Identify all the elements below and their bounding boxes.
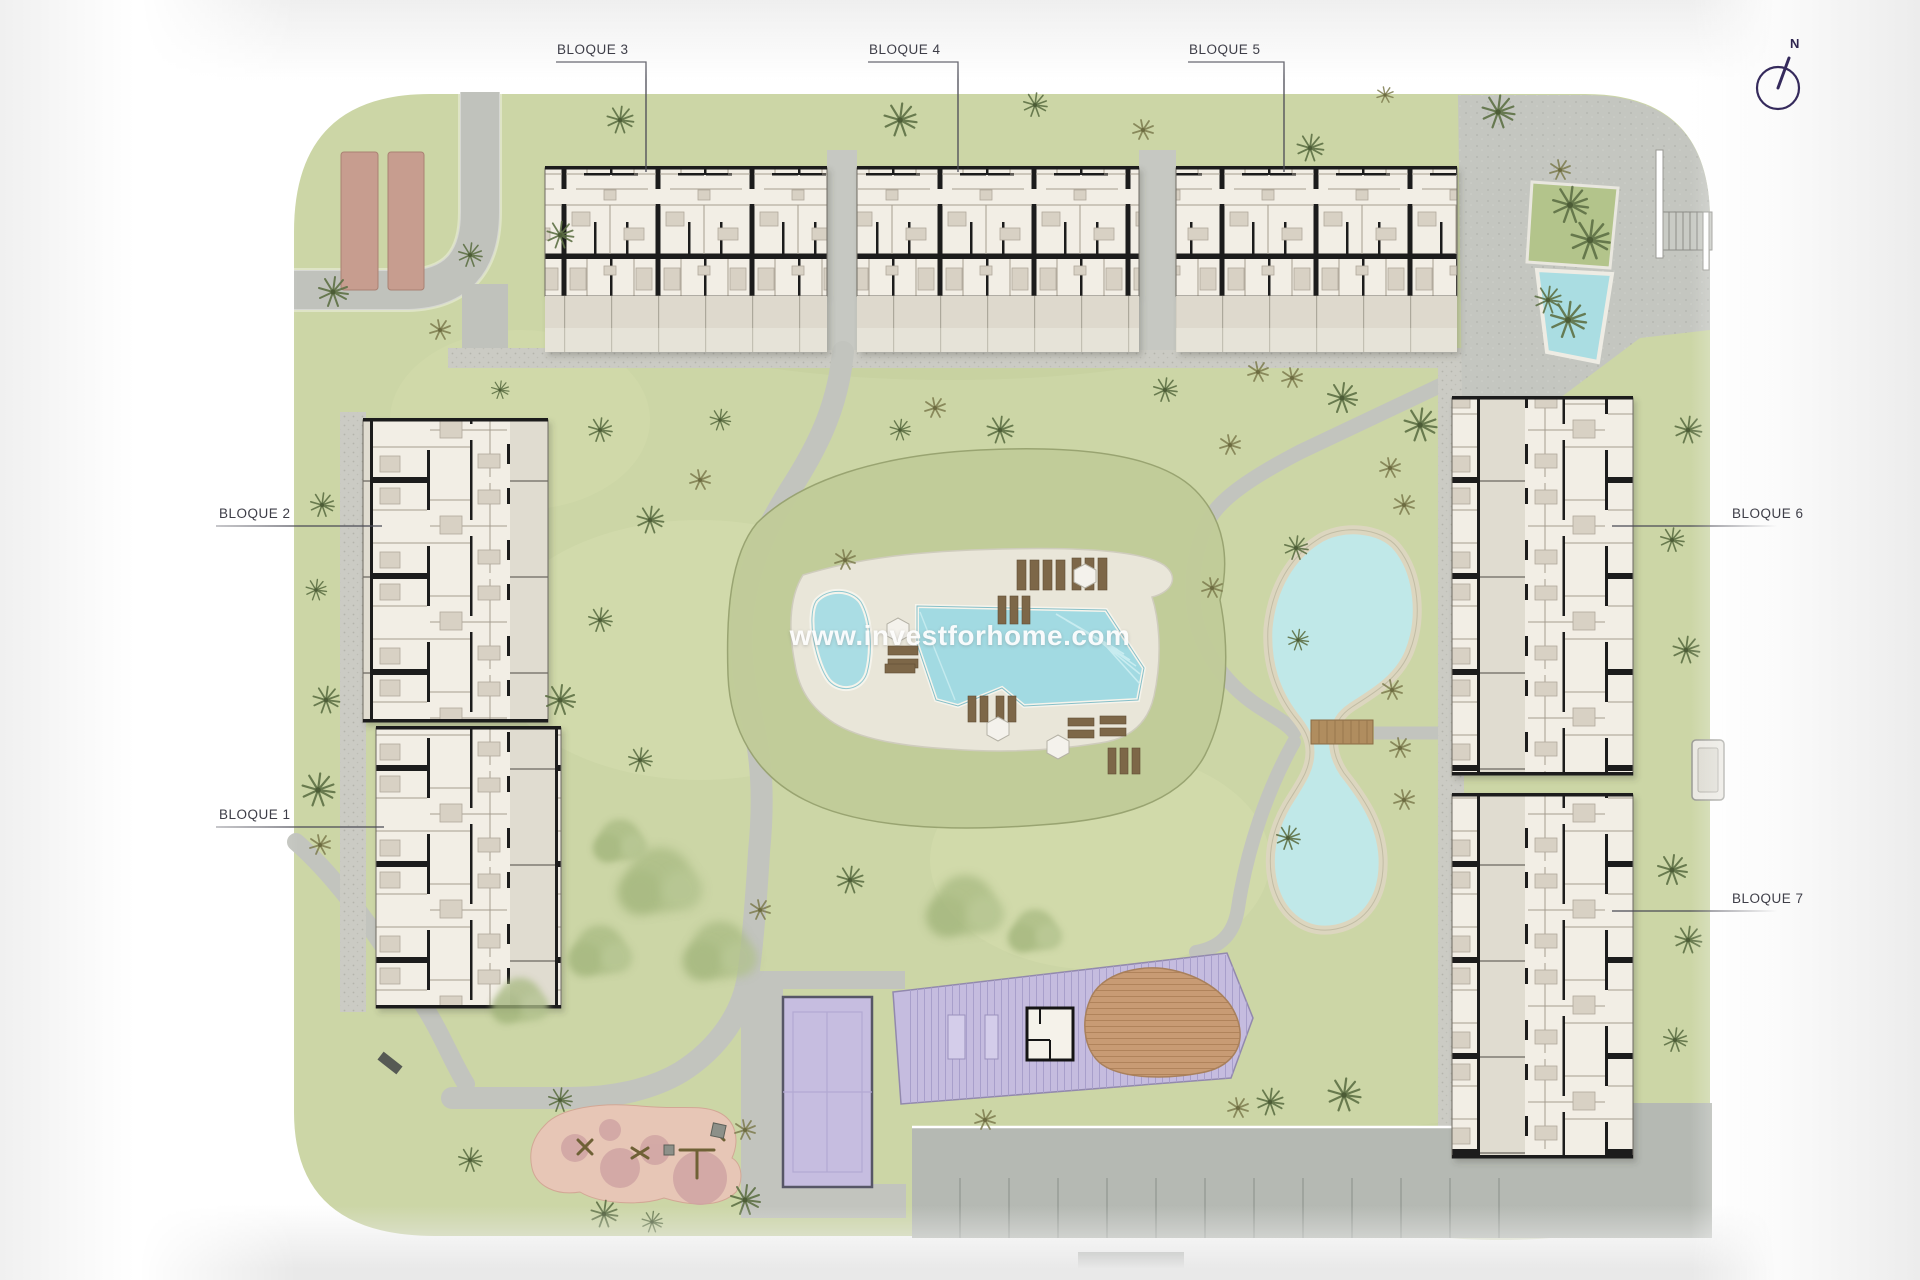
plaza-water-feature	[1537, 270, 1612, 362]
bloque-1-building	[376, 726, 561, 1009]
lake-bridge	[1311, 720, 1373, 744]
bloque-4-label: BLOQUE 4	[869, 42, 941, 57]
bloque-5-building	[1176, 166, 1457, 352]
road-stub-bottom	[1078, 1252, 1184, 1278]
bloque-2-building	[363, 418, 548, 723]
bloque-2-label: BLOQUE 2	[219, 506, 291, 521]
playground	[531, 1105, 741, 1205]
bloque-5-label: BLOQUE 5	[1189, 42, 1261, 57]
bloque-1-label: BLOQUE 1	[219, 807, 291, 822]
bloque-3-building	[545, 166, 827, 352]
bloque-6-label: BLOQUE 6	[1732, 506, 1804, 521]
bloque-7-label: BLOQUE 7	[1732, 891, 1804, 906]
watermark: www.investforhome.com	[790, 620, 1131, 652]
bloque-4-building	[857, 166, 1139, 352]
utility-box	[1692, 740, 1724, 800]
bloque-3-label: BLOQUE 3	[557, 42, 629, 57]
bloque-6-building	[1452, 396, 1633, 776]
site-plan-canvas: BLOQUE 3 BLOQUE 4 BLOQUE 5 BLOQUE 2 BLOQ…	[0, 0, 1920, 1280]
pool-house	[1027, 1008, 1073, 1060]
tennis-court	[783, 997, 872, 1187]
bloque-7-building	[1452, 793, 1633, 1159]
compass-icon: N	[1742, 38, 1822, 118]
compass-north-label: N	[1790, 36, 1799, 51]
